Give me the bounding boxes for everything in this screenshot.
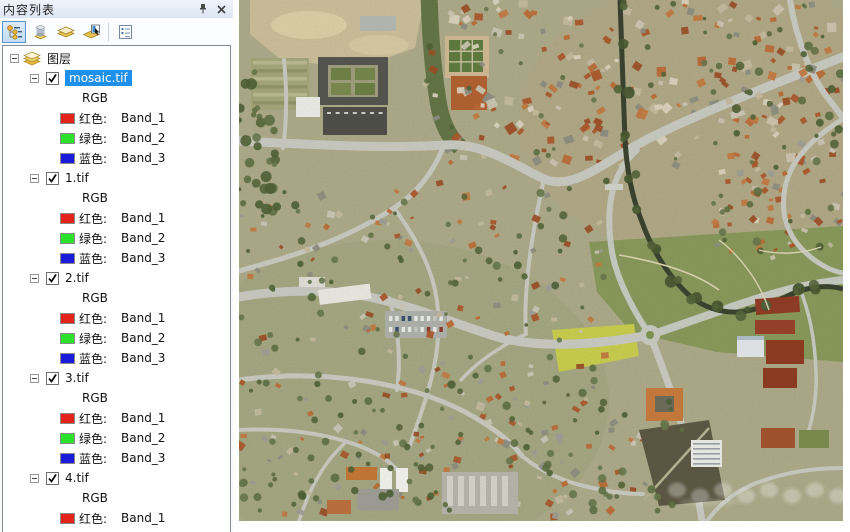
band-color-swatch[interactable]: [60, 233, 75, 244]
table-of-contents-panel: 内容列表: [0, 0, 233, 532]
layer-name-label[interactable]: 3.tif: [65, 371, 89, 385]
band-row: 红色:Band_1: [3, 508, 230, 528]
band-name-label: Band_2: [121, 231, 165, 245]
band-name-label: Band_1: [121, 111, 165, 125]
layers-tree: 图层mosaic.tifRGB红色:Band_1绿色:Band_2蓝色:Band…: [2, 45, 231, 532]
layer-row[interactable]: 4.tif: [3, 468, 230, 488]
band-channel-label: 绿色:: [79, 430, 121, 447]
layer-row[interactable]: 1.tif: [3, 168, 230, 188]
layer-visibility-checkbox[interactable]: [46, 472, 59, 485]
band-row: 蓝色:Band_3: [3, 448, 230, 468]
renderer-label: RGB: [82, 191, 108, 205]
band-channel-label: 红色:: [79, 410, 121, 427]
options-icon: [118, 24, 133, 40]
band-row: 红色:Band_1: [3, 108, 230, 128]
band-color-swatch[interactable]: [60, 113, 75, 124]
band-row: 蓝色:Band_3: [3, 248, 230, 268]
band-color-swatch[interactable]: [60, 313, 75, 324]
close-icon-glyph: [217, 5, 226, 14]
band-name-label: Band_1: [121, 411, 165, 425]
list-by-drawing-order-icon: [6, 24, 23, 40]
band-row: 红色:Band_1: [3, 408, 230, 428]
band-name-label: Band_3: [121, 151, 165, 165]
layer-row[interactable]: 3.tif: [3, 368, 230, 388]
layers-group-icon: [23, 51, 41, 66]
band-color-swatch[interactable]: [60, 153, 75, 164]
renderer-label: RGB: [82, 291, 108, 305]
band-row: 绿色:Band_2: [3, 128, 230, 148]
layer-name-label[interactable]: mosaic.tif: [65, 70, 132, 86]
layer-row[interactable]: mosaic.tif: [3, 68, 230, 88]
band-name-label: Band_1: [121, 511, 165, 525]
map-viewport[interactable]: [239, 0, 843, 521]
renderer-row: RGB: [3, 188, 230, 208]
layer-visibility-checkbox[interactable]: [46, 372, 59, 385]
tree-root-row[interactable]: 图层: [3, 48, 230, 68]
list-by-source-button[interactable]: [28, 21, 52, 43]
panel-title: 内容列表: [3, 1, 194, 18]
band-row: 绿色:Band_2: [3, 428, 230, 448]
list-by-selection-icon: [83, 24, 101, 40]
checkmark-icon: [47, 373, 58, 384]
list-by-source-icon: [32, 24, 49, 40]
band-color-swatch[interactable]: [60, 433, 75, 444]
band-color-swatch[interactable]: [60, 353, 75, 364]
band-channel-label: 红色:: [79, 310, 121, 327]
collapse-expander-icon[interactable]: [10, 54, 19, 63]
band-name-label: Band_1: [121, 311, 165, 325]
list-by-visibility-icon: [57, 24, 75, 40]
checkmark-icon: [47, 273, 58, 284]
band-row: 蓝色:Band_3: [3, 348, 230, 368]
band-channel-label: 绿色:: [79, 130, 121, 147]
band-color-swatch[interactable]: [60, 253, 75, 264]
band-color-swatch[interactable]: [60, 333, 75, 344]
renderer-row: RGB: [3, 488, 230, 508]
band-channel-label: 蓝色:: [79, 150, 121, 167]
layer-row[interactable]: 2.tif: [3, 268, 230, 288]
band-channel-label: 蓝色:: [79, 350, 121, 367]
toolbar-separator: [108, 23, 109, 41]
band-row: 红色:Band_1: [3, 308, 230, 328]
checkmark-icon: [47, 173, 58, 184]
list-by-selection-button[interactable]: [80, 21, 104, 43]
layer-name-label[interactable]: 1.tif: [65, 171, 89, 185]
checkmark-icon: [47, 473, 58, 484]
band-color-swatch[interactable]: [60, 453, 75, 464]
aerial-imagery: [239, 0, 843, 521]
checkmark-icon: [47, 73, 58, 84]
band-channel-label: 红色:: [79, 210, 121, 227]
band-row: 蓝色:Band_3: [3, 148, 230, 168]
collapse-expander-icon[interactable]: [30, 274, 39, 283]
band-color-swatch[interactable]: [60, 413, 75, 424]
collapse-expander-icon[interactable]: [30, 74, 39, 83]
band-name-label: Band_2: [121, 431, 165, 445]
band-name-label: Band_3: [121, 351, 165, 365]
band-channel-label: 蓝色:: [79, 450, 121, 467]
close-icon[interactable]: [213, 2, 229, 16]
band-channel-label: 蓝色:: [79, 250, 121, 267]
renderer-label: RGB: [82, 91, 108, 105]
arcmap-window: 内容列表: [0, 0, 850, 532]
collapse-expander-icon[interactable]: [30, 374, 39, 383]
band-name-label: Band_1: [121, 211, 165, 225]
renderer-row: RGB: [3, 288, 230, 308]
band-color-swatch[interactable]: [60, 133, 75, 144]
list-by-drawing-order-button[interactable]: [2, 21, 26, 43]
layer-name-label[interactable]: 2.tif: [65, 271, 89, 285]
band-row: 绿色:Band_2: [3, 228, 230, 248]
band-name-label: Band_2: [121, 131, 165, 145]
layer-visibility-checkbox[interactable]: [46, 272, 59, 285]
band-channel-label: 绿色:: [79, 330, 121, 347]
layer-visibility-checkbox[interactable]: [46, 172, 59, 185]
panel-toolbar: [0, 19, 233, 44]
band-name-label: Band_2: [121, 331, 165, 345]
panel-titlebar[interactable]: 内容列表: [0, 0, 233, 18]
list-by-visibility-button[interactable]: [54, 21, 78, 43]
renderer-label: RGB: [82, 391, 108, 405]
tree-root-label: 图层: [47, 50, 71, 67]
band-row: 红色:Band_1: [3, 208, 230, 228]
layer-visibility-checkbox[interactable]: [46, 72, 59, 85]
renderer-label: RGB: [82, 491, 108, 505]
band-channel-label: 绿色:: [79, 230, 121, 247]
band-color-swatch[interactable]: [60, 513, 75, 524]
pin-icon[interactable]: [195, 2, 211, 16]
renderer-row: RGB: [3, 388, 230, 408]
collapse-expander-icon[interactable]: [30, 174, 39, 183]
band-name-label: Band_3: [121, 251, 165, 265]
band-channel-label: 红色:: [79, 110, 121, 127]
layer-name-label[interactable]: 4.tif: [65, 471, 89, 485]
pin-icon-glyph: [198, 3, 208, 15]
band-channel-label: 红色:: [79, 510, 121, 527]
collapse-expander-icon[interactable]: [30, 474, 39, 483]
options-button[interactable]: [113, 21, 137, 43]
band-row: 绿色:Band_2: [3, 528, 230, 532]
renderer-row: RGB: [3, 88, 230, 108]
band-color-swatch[interactable]: [60, 213, 75, 224]
band-name-label: Band_3: [121, 451, 165, 465]
band-row: 绿色:Band_2: [3, 328, 230, 348]
